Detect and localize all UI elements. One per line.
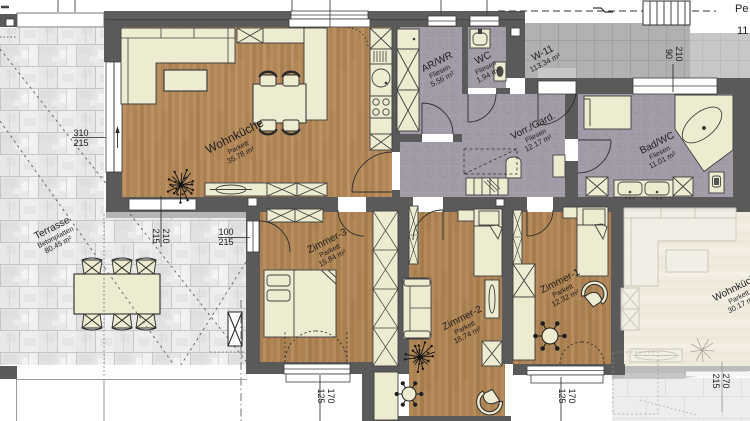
svg-text:100: 100 [218, 227, 233, 237]
svg-text:170: 170 [326, 388, 336, 403]
svg-text:215: 215 [711, 373, 721, 388]
svg-text:125: 125 [316, 388, 326, 403]
svg-text:215: 215 [73, 138, 88, 148]
svg-text:170: 170 [567, 388, 577, 403]
svg-text:215: 215 [151, 228, 161, 243]
svg-text:310: 310 [73, 128, 88, 138]
svg-text:125: 125 [557, 388, 567, 403]
svg-text:11: 11 [737, 25, 748, 37]
svg-text:215: 215 [218, 237, 233, 247]
svg-text:210: 210 [674, 46, 684, 61]
svg-text:Pe: Pe [735, 3, 748, 15]
svg-text:210: 210 [161, 228, 171, 243]
svg-text:270: 270 [721, 373, 731, 388]
svg-text:90: 90 [664, 49, 674, 59]
